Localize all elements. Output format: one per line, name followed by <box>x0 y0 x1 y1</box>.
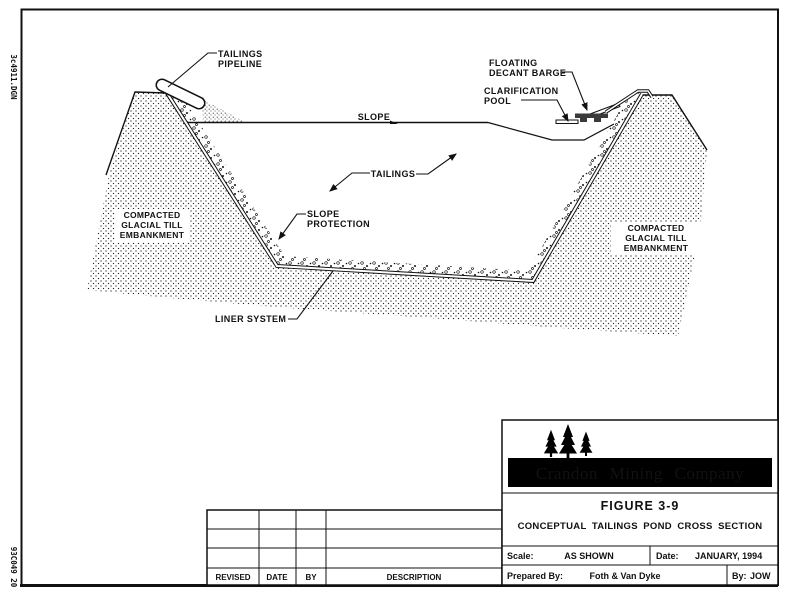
figure-title: CONCEPTUAL TAILINGS POND CROSS SECTION <box>518 521 763 532</box>
by-value: JOW <box>750 571 771 581</box>
prepared-by-label: Prepared By: <box>507 571 563 581</box>
barge-deck <box>575 114 608 119</box>
embankment-left-label3: EMBANKMENT <box>120 230 185 240</box>
slope-protection-label2: PROTECTION <box>307 219 370 229</box>
margin-note-number: 93C049 20 <box>9 547 18 588</box>
pipeline-discharge-spray <box>202 99 245 122</box>
floating-decant-barge-label: FLOATING <box>489 58 538 68</box>
date-value: JANUARY, 1994 <box>695 551 762 561</box>
revision-header-description: DESCRIPTION <box>387 573 442 582</box>
embankment-left-label2: GLACIAL TILL <box>121 220 183 230</box>
date-label: Date: <box>656 551 679 561</box>
embankment-right-label2: GLACIAL TILL <box>625 233 687 243</box>
clarification-pool-leader <box>521 100 568 121</box>
drawing-sheet: 3c4911.DGN 93C049 20 TAILINGS PIPELINE F… <box>0 0 795 600</box>
slope-protection-label: SLOPE <box>307 209 340 219</box>
clarification-pool-label: CLARIFICATION <box>484 86 559 96</box>
tailings-leader-left <box>330 173 370 191</box>
title-block: Crandon Mining Company FIGURE 3-9 CONCEP… <box>502 420 778 585</box>
tailings-pipeline-label2: PIPELINE <box>218 59 262 69</box>
barge-float-left <box>580 118 587 122</box>
tailings-pond-drawing: 3c4911.DGN 93C049 20 TAILINGS PIPELINE F… <box>0 0 795 600</box>
scale-value: AS SHOWN <box>564 551 614 561</box>
clarification-pool-label2: POOL <box>484 96 511 106</box>
company-name: Crandon Mining Company <box>536 464 744 483</box>
tailings-label: TAILINGS <box>371 169 416 179</box>
floating-decant-barge-label2: DECANT BARGE <box>489 68 566 78</box>
prepared-by-value: Foth & Van Dyke <box>589 571 660 581</box>
revision-table: REVISED DATE BY DESCRIPTION <box>207 510 502 585</box>
slope-label: SLOPE <box>358 112 391 122</box>
embankment-right-label: COMPACTED <box>628 223 685 233</box>
revision-header-by: BY <box>305 573 317 582</box>
tailings-pipeline-label: TAILINGS <box>218 49 263 59</box>
tailings-leader-right <box>416 154 456 174</box>
margin-note-file: 3c4911.DGN <box>9 54 18 100</box>
revision-header-revised: REVISED <box>215 573 250 582</box>
figure-number: FIGURE 3-9 <box>601 499 680 513</box>
revision-header-date: DATE <box>266 573 288 582</box>
clarification-pool-profile <box>488 123 614 141</box>
scale-label: Scale: <box>507 551 534 561</box>
slope-protection-leader <box>279 214 306 239</box>
barge-float-right <box>594 118 601 122</box>
liner-system-label: LINER SYSTEM <box>215 314 286 324</box>
pool-float-plank <box>556 120 578 124</box>
tailings-pipeline-leader <box>168 53 217 87</box>
embankment-right-label3: EMBANKMENT <box>624 243 689 253</box>
embankment-left-label: COMPACTED <box>124 210 181 220</box>
by-label: By: <box>732 571 747 581</box>
